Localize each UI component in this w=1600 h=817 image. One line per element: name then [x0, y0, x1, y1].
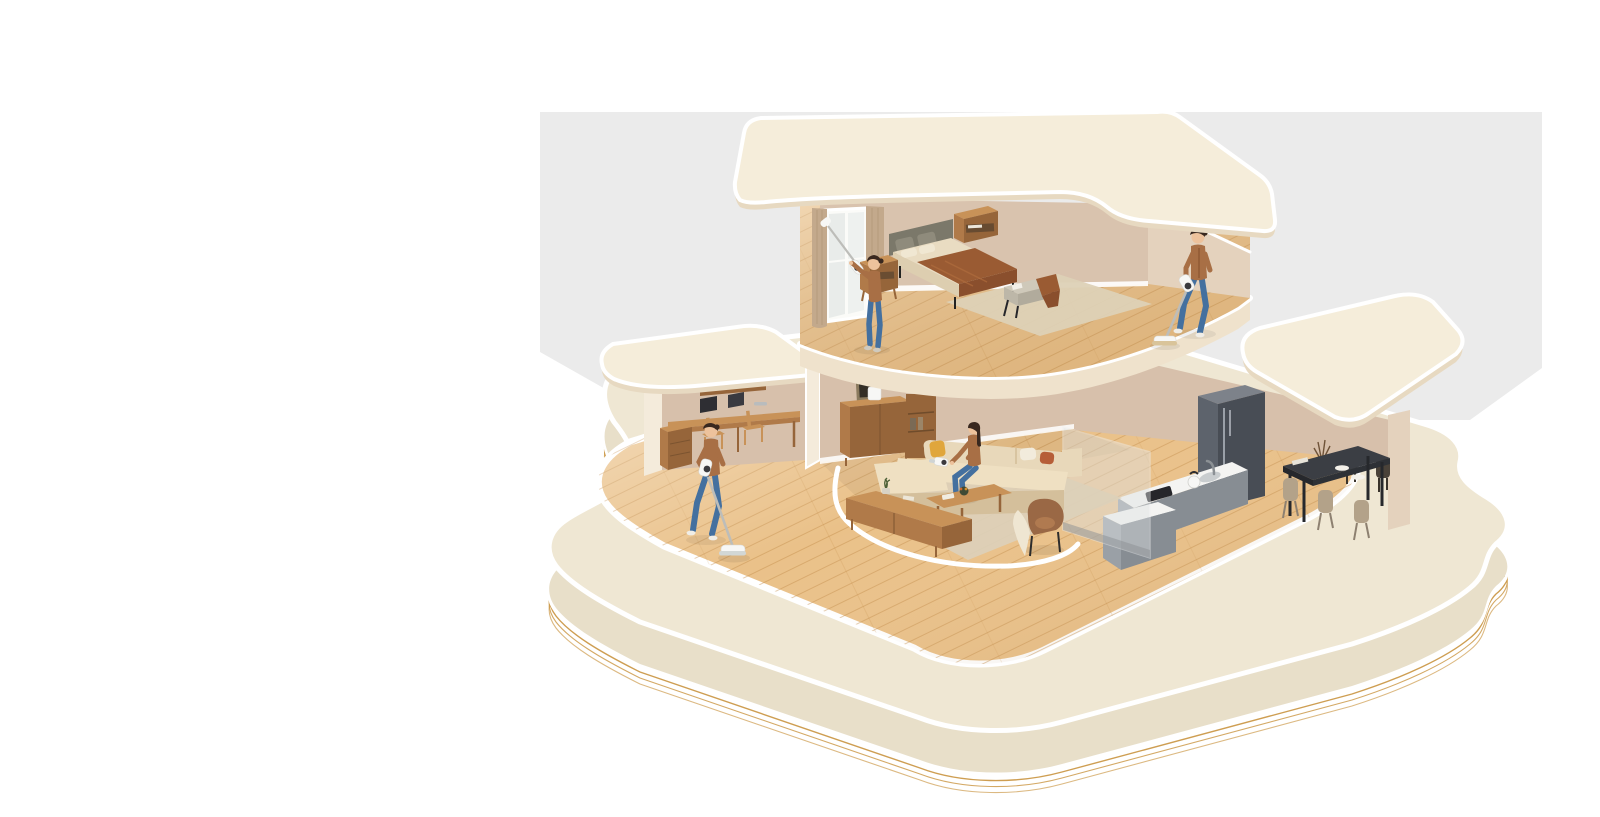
illustration-stage: [0, 0, 1600, 817]
rust-pillow: [1039, 451, 1054, 464]
plate-2: [1351, 474, 1365, 480]
plate-1: [1335, 465, 1349, 471]
roof-support-column: [1388, 410, 1410, 530]
study-drawer-cabinet: [660, 423, 692, 470]
yellow-pillow: [929, 440, 946, 458]
white-appliance: [868, 387, 881, 400]
cutaway-house-illustration: [0, 0, 1600, 817]
white-pillow: [1020, 447, 1037, 460]
